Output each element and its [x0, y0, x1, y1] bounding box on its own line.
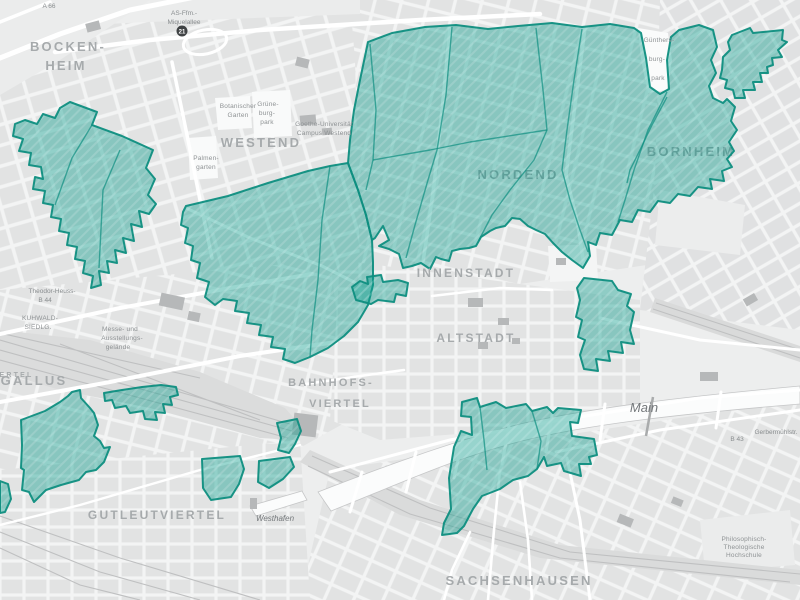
- area-label: burg-: [259, 110, 275, 117]
- area-label: Theologische: [723, 544, 764, 551]
- district-label: GUTLEUTVIERTEL: [88, 508, 226, 522]
- district-label: SACHSENHAUSEN: [445, 573, 592, 588]
- water-label: Westhafen: [256, 514, 295, 523]
- district-label: VIERTEL: [309, 398, 371, 410]
- area-label: Garten: [227, 112, 248, 119]
- area-label: Ausstellungs-: [101, 335, 143, 342]
- district-label: INNENSTADT: [417, 266, 515, 280]
- district-label: ALTSTADT: [436, 331, 515, 345]
- area-label: Messe- und: [102, 326, 138, 333]
- road-label: Gerbermühlstr.: [755, 429, 798, 436]
- district-label: WESTEND: [221, 135, 301, 150]
- road-label: AS-Ffm.-: [171, 10, 197, 17]
- water-label: Main: [630, 400, 658, 415]
- area-label: Grüne-: [257, 101, 278, 108]
- junction-badge: 21: [177, 26, 188, 37]
- road-label: B 43: [730, 436, 744, 443]
- area-label: park: [260, 119, 274, 126]
- area-label: gelände: [106, 344, 131, 351]
- district-label: BAHNHOFS-: [288, 377, 374, 389]
- road-label: Theodor-Heuss-: [29, 288, 76, 295]
- area-label: garten: [196, 164, 216, 171]
- district-label: BOCKEN-: [30, 39, 106, 54]
- area-label: Goethe-Universität: [295, 121, 353, 128]
- area-label: burg-: [649, 56, 665, 63]
- road-label: A 66: [42, 3, 55, 10]
- area-label: park: [651, 75, 665, 82]
- junction-badge-number: 21: [179, 30, 186, 36]
- map-canvas[interactable]: NORDENDBORNHEIM BOCKEN-HEIMWESTENDINNENS…: [0, 0, 800, 600]
- district-label: HEIM: [45, 58, 86, 73]
- area-label: Palmen-: [193, 155, 219, 162]
- road-label: B 44: [38, 297, 52, 304]
- district-label: VIERTEL: [0, 372, 33, 379]
- area-label: SIEDLG.: [24, 324, 51, 331]
- road-label: Miquelallee: [168, 19, 201, 26]
- area-label: KUHWALD-: [22, 315, 58, 322]
- area-label: Philosophisch-: [721, 536, 766, 543]
- area-label: Botanischer: [220, 103, 257, 110]
- area-label: Campus Westend: [297, 130, 352, 137]
- area-label: Hochschule: [726, 552, 762, 559]
- area-label: Günthers-: [644, 37, 675, 44]
